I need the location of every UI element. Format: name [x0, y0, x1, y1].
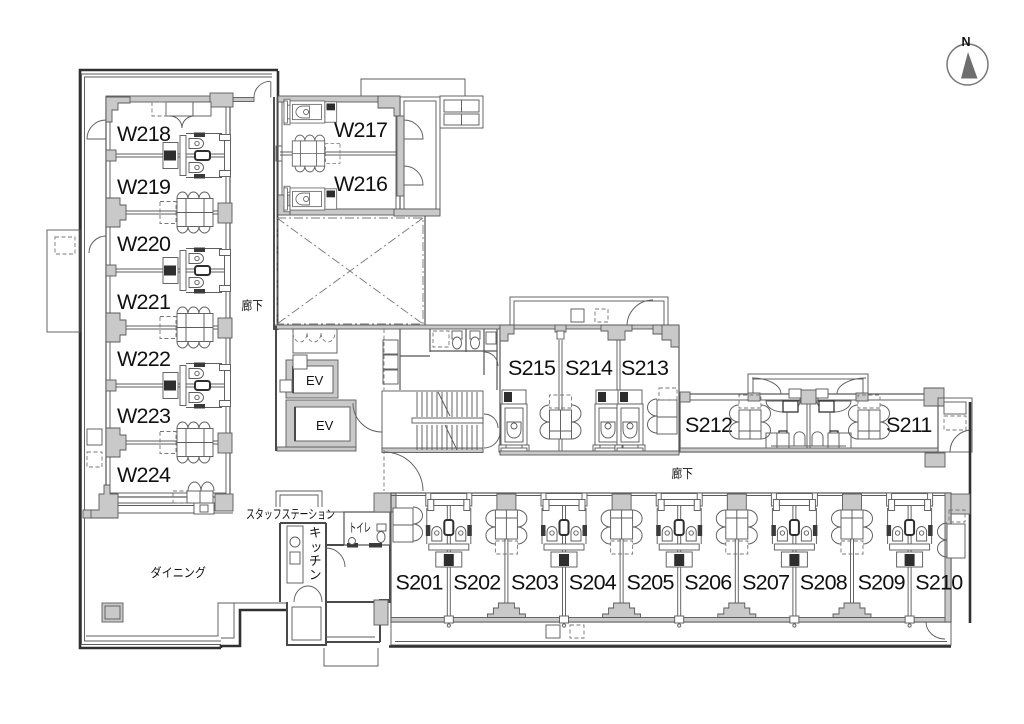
svg-text:S210: S210: [915, 571, 963, 595]
svg-text:S205: S205: [627, 571, 675, 595]
svg-text:S212: S212: [685, 413, 732, 437]
svg-text:S202: S202: [453, 571, 500, 595]
svg-text:EV: EV: [316, 418, 334, 433]
svg-text:W224: W224: [117, 463, 171, 487]
svg-text:S206: S206: [684, 571, 732, 595]
svg-text:S207: S207: [742, 571, 789, 595]
svg-text:EV: EV: [306, 373, 324, 388]
svg-text:廊下: 廊下: [672, 466, 694, 481]
svg-text:トイレ: トイレ: [349, 521, 371, 535]
svg-text:S213: S213: [621, 356, 669, 380]
svg-text:スタッフステーション: スタッフステーション: [246, 508, 335, 522]
svg-text:N: N: [962, 35, 971, 49]
svg-text:チ: チ: [309, 554, 322, 568]
svg-text:S211: S211: [886, 413, 932, 437]
svg-text:キ: キ: [309, 526, 322, 540]
svg-text:W222: W222: [117, 347, 170, 371]
svg-text:S214: S214: [565, 356, 613, 380]
svg-text:S209: S209: [858, 571, 905, 595]
svg-text:W220: W220: [117, 232, 171, 256]
svg-text:ダイニング: ダイニング: [151, 565, 207, 580]
svg-text:S203: S203: [511, 571, 559, 595]
svg-text:S204: S204: [569, 571, 617, 595]
svg-text:S208: S208: [800, 571, 848, 595]
svg-text:W216: W216: [334, 172, 388, 196]
svg-text:廊下: 廊下: [242, 298, 264, 313]
svg-text:W223: W223: [117, 404, 171, 428]
svg-text:ン: ン: [309, 568, 322, 582]
svg-text:ッ: ッ: [310, 540, 323, 554]
svg-text:S215: S215: [508, 356, 556, 380]
svg-text:S201: S201: [396, 571, 443, 595]
svg-text:W219: W219: [117, 175, 170, 199]
svg-text:W217: W217: [334, 118, 387, 142]
svg-text:W221: W221: [117, 290, 170, 314]
